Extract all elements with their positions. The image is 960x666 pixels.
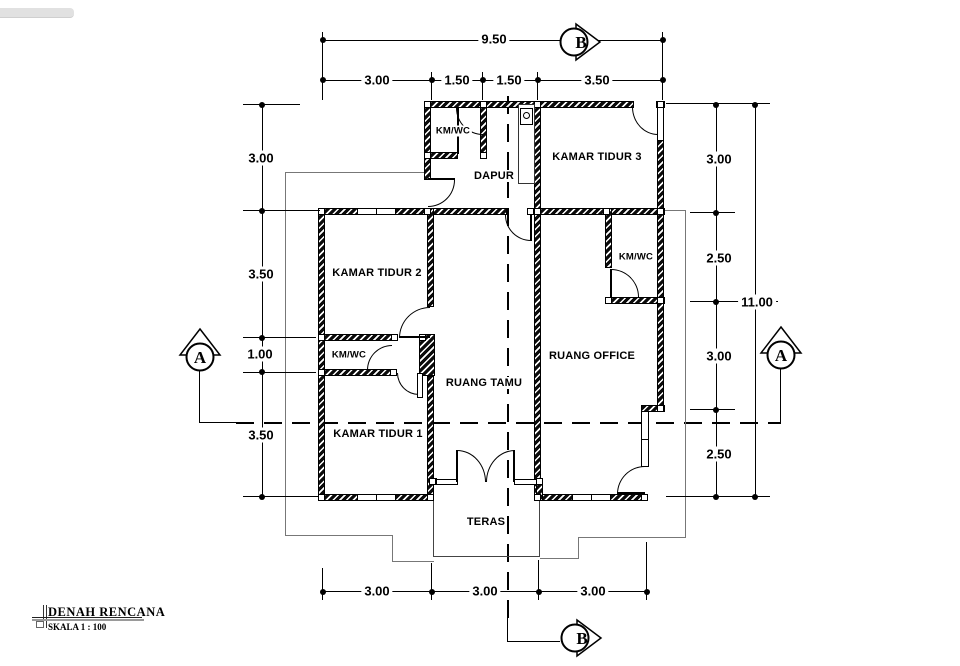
room-label-kmwc-right: KM/WC [617, 252, 655, 263]
column-marker [603, 208, 610, 215]
column-marker [527, 208, 534, 215]
dim-label: 2.50 [703, 251, 734, 266]
door-leaf [617, 492, 645, 494]
window-mullion [376, 208, 377, 215]
section-marker-letter: A [194, 348, 207, 367]
column-marker [424, 101, 431, 108]
toolbar-fragment [0, 8, 74, 18]
dimension-dot [713, 210, 719, 216]
door-arc [399, 307, 430, 338]
column-marker [480, 101, 487, 108]
extension-line [243, 496, 318, 497]
room-label-teras: TERAS [465, 516, 507, 528]
section-marker-b-bottom: B [553, 616, 605, 660]
window [514, 479, 537, 485]
dimension-dot [752, 494, 758, 500]
door-leaf [417, 373, 423, 398]
column-marker [318, 334, 325, 341]
dim-label: 3.00 [577, 584, 608, 599]
column-marker [534, 494, 541, 501]
title-block: DENAH RENCANA SKALA 1 : 100 [32, 600, 192, 640]
dim-label: 3.50 [245, 428, 276, 443]
column-marker [657, 208, 664, 215]
column-marker [536, 478, 543, 485]
roof-outline [285, 172, 286, 536]
window-mullion [641, 439, 649, 440]
dimension-dot [320, 37, 326, 43]
column-marker [605, 297, 612, 304]
entry-door-arc [457, 450, 486, 482]
door-arc [397, 373, 419, 395]
wall [395, 208, 507, 215]
wall [318, 334, 398, 341]
dimension-dot [536, 589, 542, 595]
dim-label: 1.00 [244, 347, 275, 362]
teras-slab-edge [433, 556, 540, 557]
door-arc [428, 180, 455, 207]
dimension-dot [259, 369, 265, 375]
dim-label: 3.50 [245, 267, 276, 282]
door-leaf [610, 269, 612, 297]
wall [424, 101, 431, 180]
room-label-ruang-office: RUANG OFFICE [547, 350, 637, 362]
door-leaf [399, 336, 430, 338]
dim-label: 3.00 [245, 151, 276, 166]
dimension-dot [752, 102, 758, 108]
section-marker-b-top: B [552, 20, 604, 64]
window-mullion [591, 494, 592, 501]
window [436, 479, 458, 485]
column-marker [480, 152, 487, 159]
dim-label: 2.50 [703, 447, 734, 462]
extension-line [243, 372, 316, 373]
wall [605, 208, 612, 268]
dim-label: 3.00 [361, 73, 392, 88]
door-leaf [428, 178, 455, 180]
section-leader-a-left [199, 422, 237, 423]
roof-outline [578, 537, 579, 559]
door-arc [611, 269, 639, 297]
column-marker [429, 478, 436, 485]
roof-outline [540, 558, 579, 559]
door-arc [367, 345, 392, 370]
dimension-dot [644, 589, 650, 595]
dim-label: 3.50 [581, 73, 612, 88]
title-underline [32, 619, 144, 621]
door-leaf [513, 450, 515, 482]
section-marker-letter: B [576, 629, 587, 648]
column-marker [424, 208, 431, 215]
wall [318, 369, 397, 376]
dim-label: 1.50 [493, 73, 524, 88]
extension-line [243, 104, 300, 105]
dimension-dot [259, 208, 265, 214]
section-marker-letter: B [575, 33, 586, 52]
section-marker-a-left: A [178, 327, 222, 373]
roof-outline [578, 537, 686, 538]
floor-plan-canvas: 9.50 3.00 1.50 1.50 3.50 3.00 3.50 1.00 … [0, 0, 960, 666]
dim-label: 1.50 [441, 73, 472, 88]
room-label-kamar-tidur-3: KAMAR TIDUR 3 [550, 151, 643, 163]
roof-outline [685, 210, 686, 538]
column-marker [427, 494, 434, 501]
dim-label-top-total: 9.50 [478, 32, 509, 47]
section-leader-a-right [780, 368, 781, 423]
roof-outline [285, 172, 424, 173]
dim-label: 3.00 [703, 349, 734, 364]
column-marker [534, 101, 541, 108]
room-label-dapur: DAPUR [472, 170, 516, 182]
dimension-dot [259, 335, 265, 341]
dimension-dot [429, 77, 435, 83]
section-marker-letter: A [775, 346, 788, 365]
dimension-dot [429, 589, 435, 595]
dimension-dot [259, 494, 265, 500]
column-marker [657, 405, 664, 412]
extension-line [322, 568, 323, 600]
room-label-kmwc-top: KM/WC [434, 126, 472, 137]
drawing-scale: SKALA 1 : 100 [48, 622, 106, 632]
window-mullion [376, 494, 377, 501]
wall [427, 208, 434, 307]
dimension-dot [480, 77, 486, 83]
dim-label: 3.00 [361, 584, 392, 599]
roof-outline [392, 535, 393, 562]
door-arc [617, 466, 645, 494]
wall [318, 208, 325, 501]
section-leader-b-bottom [507, 618, 508, 642]
column-marker [318, 494, 325, 501]
column-marker [390, 369, 397, 376]
dimension-dot [320, 77, 326, 83]
column-marker [318, 369, 325, 376]
room-label-ruang-tamu: RUANG TAMU [444, 377, 524, 389]
wall [657, 140, 664, 412]
column-marker [424, 152, 431, 159]
door-leaf [530, 215, 532, 241]
dimension-dot [259, 102, 265, 108]
dim-label: 3.00 [703, 152, 734, 167]
dimension-dot [713, 407, 719, 413]
window [657, 107, 664, 141]
column-marker [641, 494, 648, 501]
dimension-dot [660, 37, 666, 43]
room-label-kamar-tidur-2: KAMAR TIDUR 2 [330, 267, 423, 279]
roof-outline [665, 210, 686, 211]
section-marker-a-right: A [759, 325, 803, 371]
section-leader-a-left [199, 371, 200, 423]
sink-drain [523, 112, 530, 119]
roof-outline [285, 535, 393, 536]
column-marker [391, 334, 398, 341]
extension-line [243, 210, 320, 211]
title-block-corner-box [36, 621, 44, 628]
dim-label-right-total: 11.00 [738, 295, 776, 310]
door-leaf [456, 450, 458, 482]
extension-line [243, 337, 316, 338]
room-label-kmwc-left: KM/WC [330, 350, 368, 361]
roof-outline [392, 561, 434, 562]
wall [605, 297, 665, 304]
door-arc [632, 107, 658, 135]
wall [534, 208, 665, 215]
dimension-dot [320, 589, 326, 595]
title-underline [32, 617, 142, 618]
wall [534, 101, 541, 501]
dimension-dot [713, 102, 719, 108]
column-marker [534, 208, 541, 215]
column-marker [657, 297, 664, 304]
entry-door-arc [486, 450, 515, 482]
column-marker [657, 101, 664, 108]
dimension-dot [713, 494, 719, 500]
dimension-dot [660, 77, 666, 83]
room-label-kamar-tidur-1: KAMAR TIDUR 1 [331, 428, 424, 440]
dimension-dot [535, 77, 541, 83]
dim-label: 3.00 [469, 584, 500, 599]
dimension-dot [713, 299, 719, 305]
